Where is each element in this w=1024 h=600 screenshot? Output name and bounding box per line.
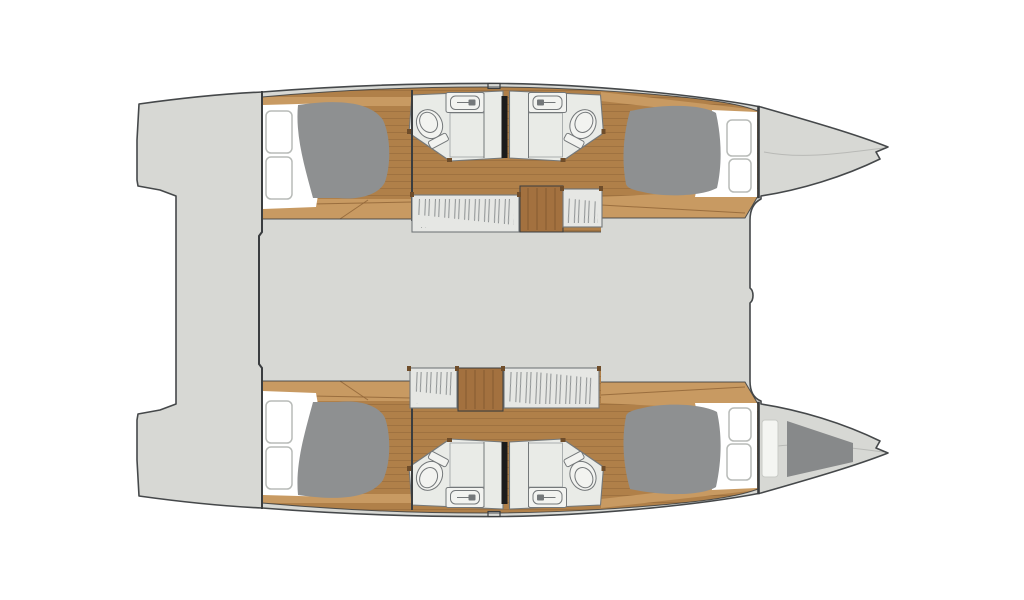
starboard-hull-storage — [407, 366, 601, 411]
door-post — [597, 366, 601, 371]
catamaran-floor-plan — [0, 0, 1024, 600]
door-post — [410, 192, 414, 197]
door-post — [517, 192, 521, 197]
companionway-steps — [520, 186, 563, 232]
hanging-clothes-hatch — [567, 193, 598, 223]
door-post — [599, 186, 603, 191]
companionway-steps — [458, 368, 503, 411]
door-post — [560, 186, 564, 191]
hanging-clothes-hatch — [414, 372, 453, 404]
forepeak-shelf — [762, 420, 778, 477]
hanging-clothes-hatch — [417, 199, 514, 228]
door-post — [407, 366, 411, 371]
floor-plan — [0, 0, 1024, 600]
door-post — [501, 366, 505, 371]
door-post — [455, 366, 459, 371]
hanging-clothes-hatch — [509, 372, 594, 404]
